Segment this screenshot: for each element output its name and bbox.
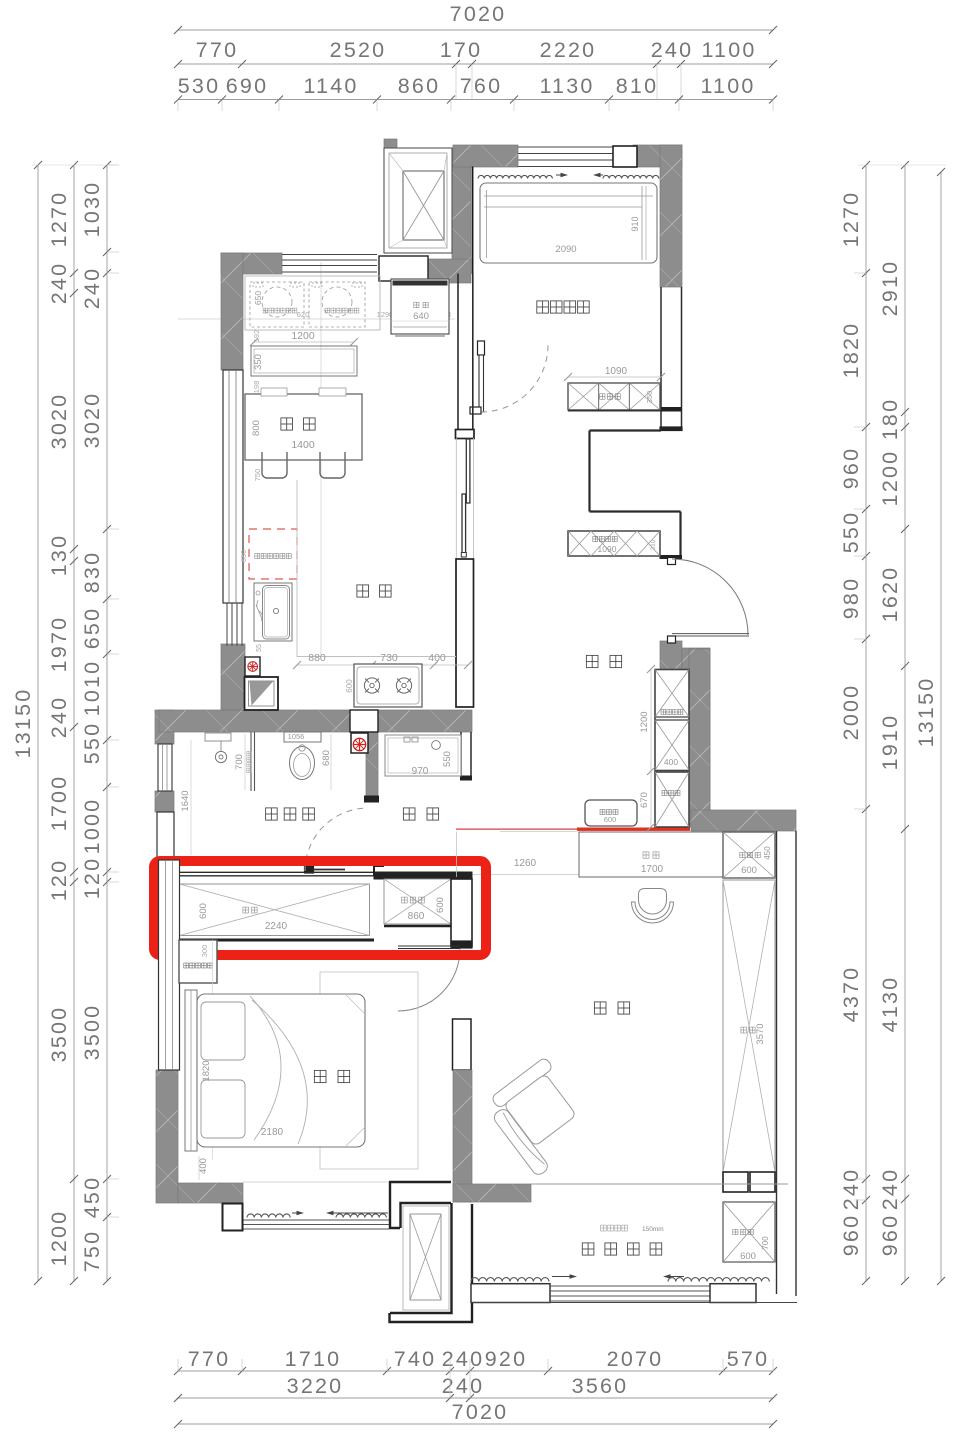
svg-text:1200: 1200 (639, 711, 650, 732)
svg-text:650: 650 (253, 291, 263, 305)
svg-text:810: 810 (616, 74, 658, 98)
svg-text:3570: 3570 (755, 1023, 766, 1044)
svg-text:3560: 3560 (572, 1374, 629, 1398)
svg-text:7020: 7020 (452, 1400, 509, 1424)
svg-text:650: 650 (80, 607, 104, 649)
svg-text:240: 240 (651, 38, 693, 62)
svg-text:1100: 1100 (701, 38, 756, 62)
svg-text:1260: 1260 (514, 858, 537, 869)
svg-text:2220: 2220 (540, 38, 597, 62)
svg-text:240: 240 (442, 1347, 484, 1371)
svg-text:600: 600 (604, 815, 617, 824)
svg-text:600: 600 (435, 897, 446, 913)
svg-text:1090: 1090 (605, 366, 628, 377)
svg-text:550: 550 (442, 751, 453, 767)
svg-text:920: 920 (485, 1347, 527, 1371)
svg-text:1200: 1200 (291, 330, 315, 342)
svg-text:1270: 1270 (47, 191, 71, 248)
svg-text:1820: 1820 (839, 322, 863, 379)
svg-text:880: 880 (308, 652, 326, 664)
svg-text:830: 830 (80, 551, 104, 593)
svg-text:192: 192 (252, 330, 261, 343)
svg-text:450: 450 (763, 846, 772, 860)
svg-text:1200: 1200 (47, 1210, 71, 1267)
svg-text:1710: 1710 (285, 1347, 342, 1371)
svg-text:3500: 3500 (47, 1006, 71, 1063)
svg-text:960: 960 (878, 1214, 902, 1256)
svg-text:530: 530 (178, 74, 220, 98)
svg-text:120: 120 (47, 859, 71, 901)
svg-text:400: 400 (428, 652, 446, 664)
svg-text:570: 570 (727, 1347, 769, 1371)
svg-text:350: 350 (253, 354, 264, 370)
svg-text:2180: 2180 (261, 1127, 284, 1138)
svg-text:2520: 2520 (330, 38, 387, 62)
svg-text:600: 600 (740, 1251, 756, 1262)
svg-text:980: 980 (839, 577, 863, 619)
svg-text:700: 700 (234, 754, 245, 770)
svg-text:1056: 1056 (288, 732, 305, 741)
svg-text:198: 198 (252, 381, 261, 394)
svg-text:770: 770 (196, 38, 238, 62)
svg-text:750: 750 (80, 1230, 104, 1272)
svg-text:150mm: 150mm (642, 1226, 664, 1233)
svg-text:3020: 3020 (80, 392, 104, 449)
svg-text:2240: 2240 (265, 921, 288, 932)
svg-text:1030: 1030 (80, 181, 104, 238)
svg-text:1700: 1700 (641, 864, 664, 875)
svg-text:910: 910 (630, 216, 640, 231)
svg-text:700: 700 (761, 1236, 770, 1250)
svg-text:13150: 13150 (11, 688, 35, 759)
svg-text:1970: 1970 (47, 616, 71, 673)
svg-text:1620: 1620 (878, 566, 902, 623)
svg-text:3500: 3500 (80, 1004, 104, 1061)
svg-text:650: 650 (239, 550, 248, 563)
svg-text:240: 240 (47, 696, 71, 738)
svg-text:760: 760 (460, 74, 502, 98)
svg-text:7020: 7020 (450, 2, 507, 26)
svg-text:1270: 1270 (839, 191, 863, 248)
svg-text:130: 130 (47, 534, 71, 576)
svg-text:2090: 2090 (555, 244, 576, 255)
svg-text:640: 640 (413, 311, 429, 322)
svg-text:240: 240 (47, 262, 71, 304)
svg-text:1400: 1400 (291, 439, 315, 451)
svg-text:860: 860 (398, 74, 440, 98)
svg-text:180: 180 (878, 398, 902, 440)
svg-text:400: 400 (198, 1158, 209, 1174)
svg-text:3220: 3220 (287, 1374, 344, 1398)
svg-text:1200: 1200 (878, 450, 902, 507)
svg-text:1010: 1010 (80, 660, 104, 717)
svg-text:600: 600 (345, 679, 354, 693)
svg-text:240: 240 (442, 1374, 484, 1398)
svg-text:550: 550 (839, 511, 863, 553)
svg-text:240: 240 (839, 1168, 863, 1210)
svg-text:600: 600 (741, 865, 757, 876)
svg-text:860: 860 (408, 911, 425, 922)
svg-text:2070: 2070 (607, 1347, 664, 1371)
svg-text:240: 240 (80, 267, 104, 309)
svg-text:680: 680 (321, 750, 332, 766)
svg-text:170: 170 (440, 38, 482, 62)
svg-text:960: 960 (839, 447, 863, 489)
svg-text:120: 120 (80, 857, 104, 899)
svg-text:400: 400 (664, 757, 678, 767)
svg-text:1130: 1130 (539, 74, 594, 98)
svg-text:750: 750 (253, 469, 262, 482)
svg-text:240: 240 (878, 1168, 902, 1210)
svg-text:300: 300 (200, 945, 209, 958)
svg-text:2910: 2910 (878, 260, 902, 317)
svg-text:550: 550 (80, 722, 104, 764)
svg-text:13150: 13150 (914, 677, 938, 748)
svg-text:1140: 1140 (303, 74, 358, 98)
svg-text:4130: 4130 (878, 976, 902, 1033)
svg-text:670: 670 (639, 792, 650, 808)
svg-text:600: 600 (198, 903, 209, 919)
svg-text:4370: 4370 (839, 966, 863, 1023)
svg-text:1910: 1910 (878, 714, 902, 771)
svg-text:730: 730 (380, 652, 398, 664)
svg-text:55: 55 (256, 644, 263, 652)
svg-text:1100: 1100 (700, 74, 755, 98)
svg-text:740: 740 (394, 1347, 436, 1371)
svg-text:450: 450 (80, 1176, 104, 1218)
svg-text:1000: 1000 (80, 798, 104, 855)
svg-text:1820: 1820 (201, 1060, 212, 1081)
svg-text:620: 620 (297, 310, 310, 319)
svg-text:1640: 1640 (180, 790, 191, 811)
svg-text:350: 350 (645, 391, 654, 404)
svg-text:960: 960 (839, 1214, 863, 1256)
svg-text:800: 800 (251, 420, 262, 436)
svg-text:2000: 2000 (839, 684, 863, 741)
svg-text:970: 970 (412, 766, 429, 777)
svg-text:310: 310 (650, 539, 657, 550)
svg-text:1700: 1700 (47, 775, 71, 832)
svg-text:3020: 3020 (47, 393, 71, 450)
svg-text:690: 690 (226, 74, 268, 98)
svg-text:770: 770 (188, 1347, 230, 1371)
svg-text:1090: 1090 (598, 544, 617, 554)
